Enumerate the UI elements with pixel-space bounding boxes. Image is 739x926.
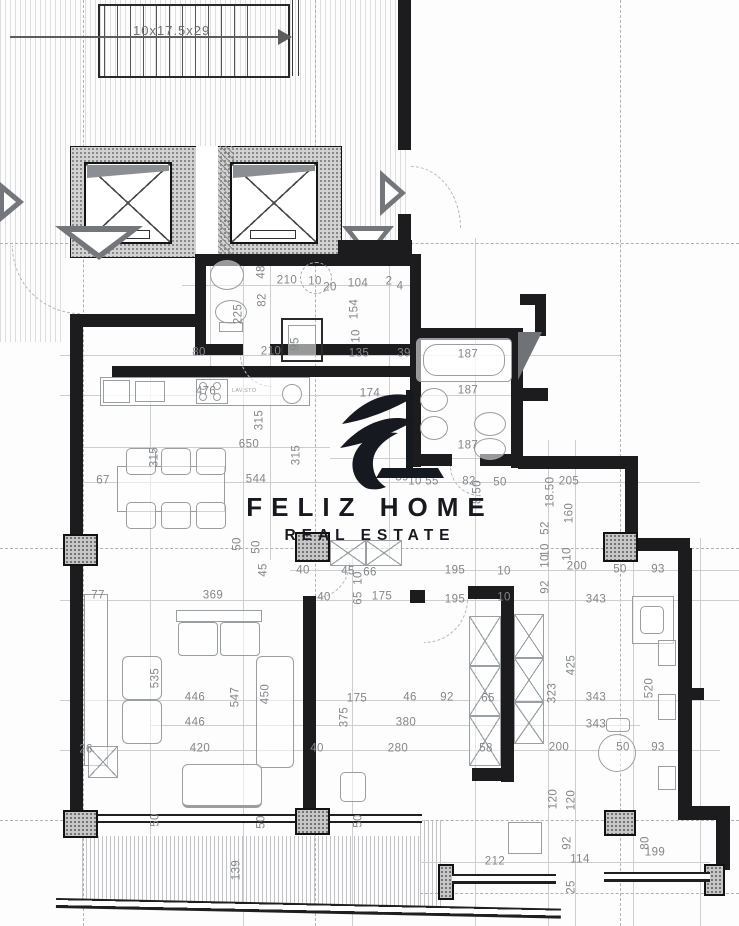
dimension-label: 195: [445, 565, 465, 577]
dimension-label: 2: [386, 276, 393, 288]
dimension-label: 82: [257, 293, 269, 307]
dimension-label: 50: [150, 813, 162, 827]
dimension-label: 425: [566, 655, 578, 675]
dimension-label: 4: [397, 281, 404, 293]
dimension-label: 225: [233, 304, 245, 324]
dimension-label: 95: [290, 337, 302, 351]
floor-plan: 10x17.5x29: [0, 0, 739, 926]
dimension-label: 343: [586, 594, 606, 606]
dimension-label: 650: [239, 439, 259, 451]
dimension-label: 446: [185, 692, 205, 704]
dimension-label: 315: [149, 447, 161, 467]
dimension-label: 520: [644, 678, 656, 698]
dimension-label: 40: [317, 592, 331, 604]
dimension-label: 199: [645, 847, 665, 859]
dimension-label: 10: [308, 276, 322, 288]
dimension-label: 343: [586, 692, 606, 704]
dimension-label: 40: [296, 565, 310, 577]
dimension-label: 67: [96, 475, 110, 487]
dimension-label: 175: [347, 693, 367, 705]
dimension-label: 200: [549, 742, 569, 754]
dimension-label: 25: [566, 880, 578, 894]
dimension-label: 104: [348, 278, 368, 290]
dimension-label: 52: [540, 521, 552, 535]
dimension-label: 187: [458, 440, 478, 452]
dimension-label: 58: [479, 743, 493, 755]
dimension-label: 18.50: [545, 477, 557, 508]
dimension-label: 535: [150, 668, 162, 688]
dimension-label: 50: [613, 564, 627, 576]
dimension-label: 20: [323, 282, 337, 294]
dimension-label: 93: [651, 742, 665, 754]
dimension-label: 10: [497, 592, 511, 604]
dimension-label: 369: [203, 590, 223, 602]
dimension-label: 40: [310, 743, 324, 755]
dimension-label: 139: [231, 860, 243, 880]
dimension-label: 210: [277, 275, 297, 287]
dimension-label: 50: [256, 815, 268, 829]
dimension-label: 80: [192, 347, 206, 359]
dimension-label: 66: [363, 567, 377, 579]
dimension-label: 544: [246, 474, 266, 486]
dimension-label: 476: [196, 386, 216, 398]
dimension-label: 212: [485, 856, 505, 868]
dimension-label: 46: [403, 692, 417, 704]
dimension-label: 205: [559, 476, 579, 488]
dimension-label: 323: [547, 683, 559, 703]
dimension-label: 48: [256, 265, 268, 279]
dimension-label: 375: [339, 707, 351, 727]
dimension-label: 160: [564, 503, 576, 523]
dimension-label: 187: [458, 385, 478, 397]
dimension-label: 420: [190, 743, 210, 755]
dimension-label: 200: [567, 561, 587, 573]
dimension-label: 175: [372, 591, 392, 603]
dimension-label: 92: [440, 692, 454, 704]
dimension-label: 50: [616, 742, 630, 754]
dimension-label: 446: [185, 717, 205, 729]
dimension-label: 65: [353, 591, 365, 605]
dimension-label: 120: [548, 789, 560, 809]
dimension-label: 135: [349, 348, 369, 360]
dimension-label: 45: [258, 563, 270, 577]
dimension-label: 120: [566, 790, 578, 810]
dimension-label: 315: [291, 445, 303, 465]
dimension-label: 154: [349, 299, 361, 319]
dimension-label: 195: [445, 594, 465, 606]
dimension-label: 10: [353, 571, 365, 585]
dimension-label: 92: [540, 580, 552, 594]
dimension-label: 210: [261, 346, 281, 358]
dimension-label: 10: [562, 547, 574, 561]
dimension-label: 93: [651, 564, 665, 576]
dimension-label: 380: [396, 717, 416, 729]
dimension-label: 10: [351, 329, 363, 343]
dimension-label: 77: [91, 590, 105, 602]
dimension-label: 50: [493, 477, 507, 489]
dimension-label: 547: [230, 687, 242, 707]
brand-tagline: REAL ESTATE: [240, 527, 500, 545]
dimension-label: 343: [586, 719, 606, 731]
dimension-label: 450: [260, 684, 272, 704]
dimension-label: 280: [388, 743, 408, 755]
feliz-home-logo-icon: [338, 390, 453, 492]
dimension-label: 92: [562, 836, 574, 850]
dimension-label: 10: [540, 554, 552, 568]
dimension-label: 39: [397, 348, 411, 360]
dimension-label: 26: [79, 744, 93, 756]
dimension-label: 315: [254, 410, 266, 430]
dimension-label: 114: [570, 854, 590, 866]
dimension-label: 187: [458, 349, 478, 361]
dimension-label: 65: [481, 693, 495, 705]
brand-name: FELIZ HOME: [240, 492, 500, 523]
dimension-label: 10: [497, 566, 511, 578]
dimension-label: 50: [353, 814, 365, 828]
